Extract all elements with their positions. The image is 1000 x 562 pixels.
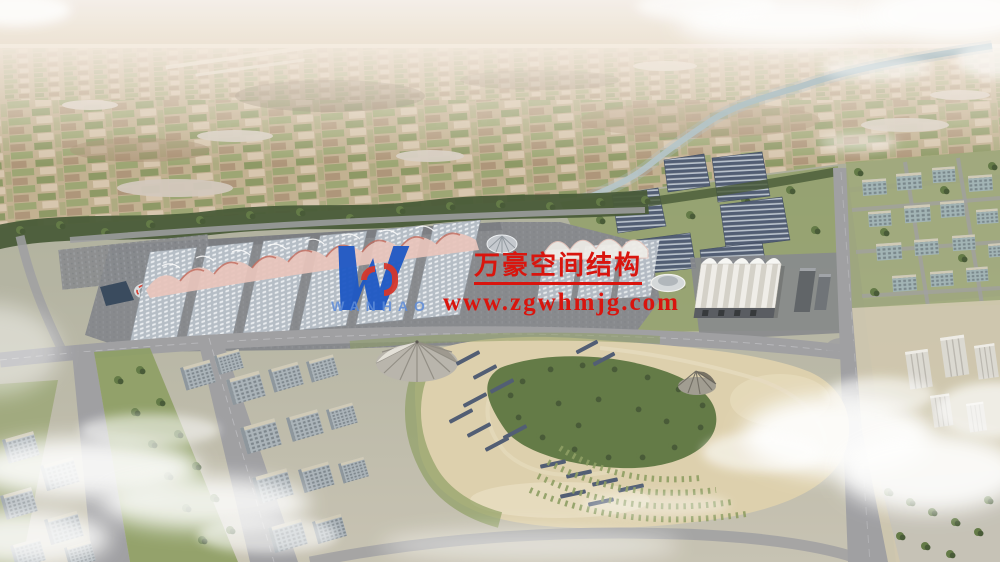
watermark-company-name: 万豪空间结构 [474,253,642,285]
watermark-logo-text: WANHAO [326,299,436,313]
aerial-rendering-exhibition-complex: WANHAO 万豪空间结构 www.zgwhmjg.com [0,0,1000,562]
watermark-website-url: www.zgwhmjg.com [443,290,680,315]
